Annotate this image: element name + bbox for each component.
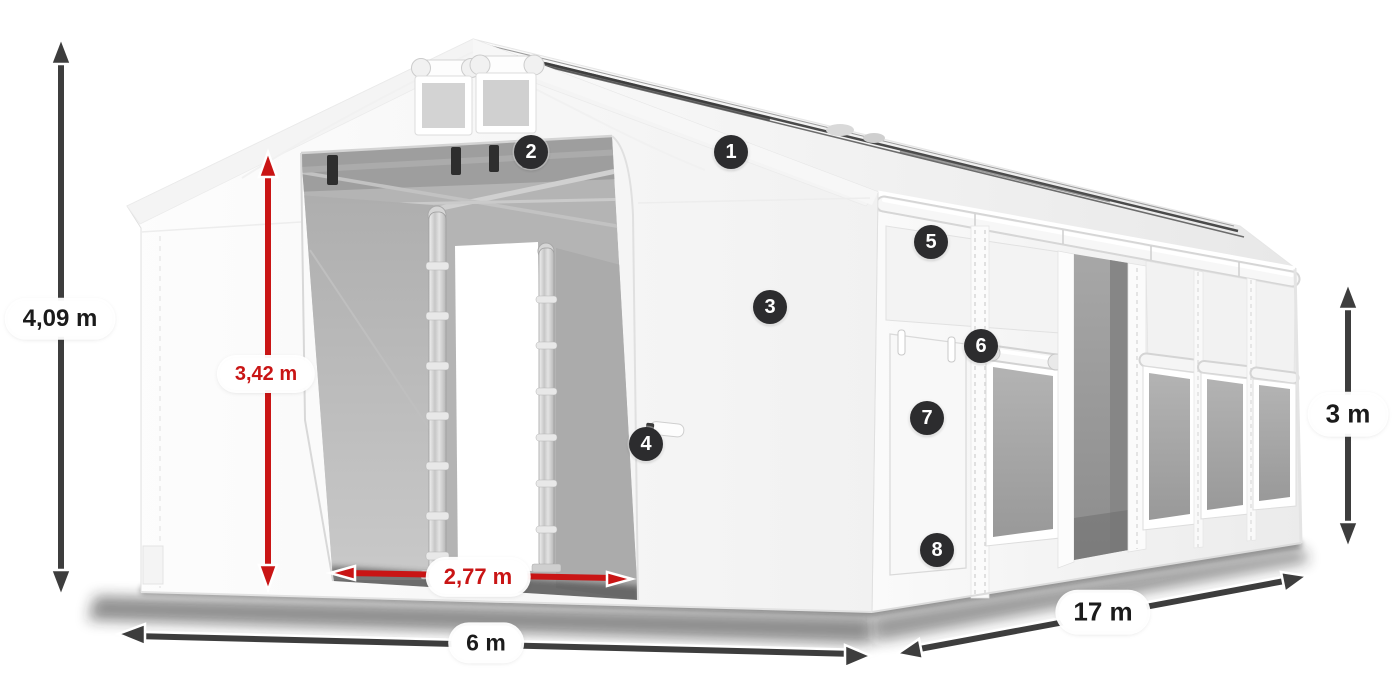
callout-marker-6: 6: [964, 329, 998, 363]
door-hanger: [948, 337, 955, 362]
interior-pass-through: [455, 242, 543, 576]
side-window-mesh: [1149, 373, 1190, 520]
callout-marker-8: 8: [920, 533, 954, 567]
door-hanger: [898, 330, 905, 355]
callout-marker-5: 5: [914, 225, 948, 259]
side-corner-pole: [1058, 251, 1074, 568]
ridge-fitting: [826, 124, 854, 136]
callout-marker-4: 4: [629, 427, 663, 461]
side-window-mesh: [993, 367, 1053, 537]
entrance-opening: [295, 120, 645, 606]
callout-marker-2: 2: [514, 135, 548, 169]
entrance-height-label: 3,42 m: [220, 358, 312, 390]
tent-illustration: [0, 0, 1400, 700]
callout-marker-3: 3: [753, 290, 787, 324]
wall-strap: [143, 546, 163, 584]
entrance-width-label: 2,77 m: [429, 560, 528, 594]
total-height-label: 4,09 m: [8, 301, 113, 337]
callout-marker-1: 1: [714, 135, 748, 169]
callout-marker-7: 7: [910, 401, 944, 435]
side-length-label: 17 m: [1058, 593, 1147, 632]
side-height-label: 3 m: [1311, 395, 1386, 434]
side-window-mesh: [1207, 379, 1243, 510]
gable-window-right: [470, 55, 544, 133]
front-width-label: 6 m: [451, 625, 521, 660]
gable-window-left: [412, 59, 481, 136]
ridge-fitting: [863, 133, 885, 143]
tent-dimension-diagram: 4,09 m 3,42 m 2,77 m 6 m 17 m 3 m 1 2 3 …: [0, 0, 1400, 700]
side-window-mesh: [1259, 385, 1290, 501]
